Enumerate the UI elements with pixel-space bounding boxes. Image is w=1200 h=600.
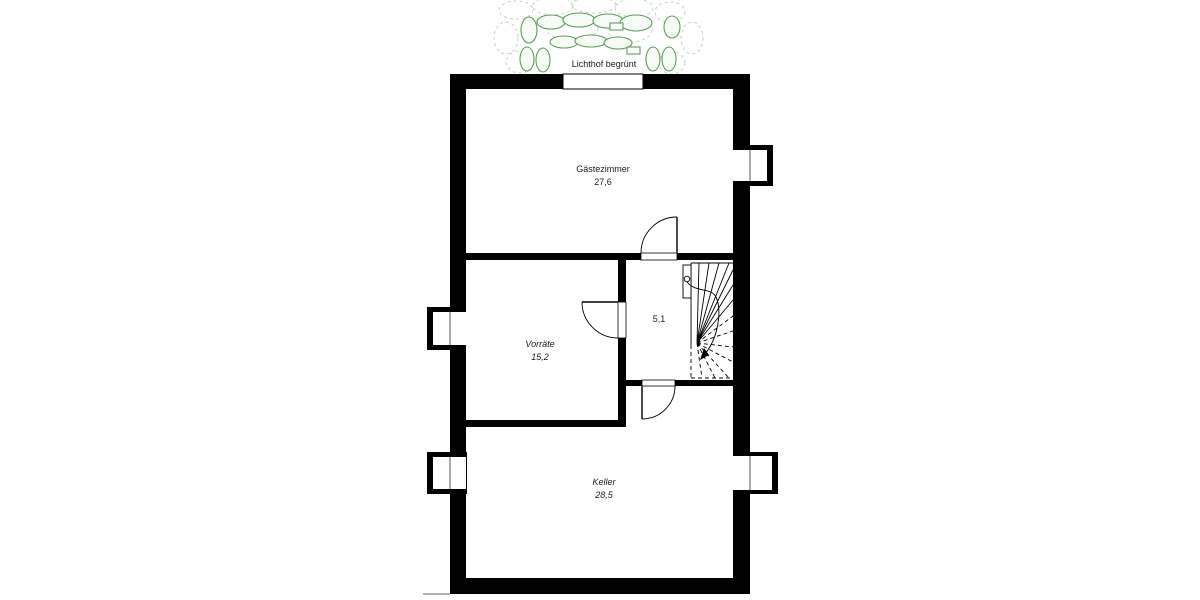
exterior-wall-bottom bbox=[450, 578, 750, 594]
interior-wall-storage-east bbox=[618, 260, 626, 427]
bush-ellipse bbox=[662, 47, 676, 71]
bush-ellipse bbox=[520, 47, 534, 71]
stair-treads-upper bbox=[697, 263, 733, 343]
room-label-cellar: Keller bbox=[592, 477, 616, 487]
stair-treads-lower bbox=[697, 316, 733, 378]
interior-wall-hall-south-right bbox=[675, 380, 733, 386]
room-area-storage: 15,2 bbox=[531, 352, 549, 362]
bush-ellipse bbox=[536, 48, 550, 72]
room-label-storage: Vorräte bbox=[525, 339, 554, 349]
stair-outline-dashed bbox=[691, 345, 733, 378]
bush-ellipse bbox=[575, 35, 607, 47]
storage-door-swing-arc bbox=[582, 302, 618, 338]
room-area-stairhall: 5,1 bbox=[653, 314, 666, 324]
bush-ellipse bbox=[646, 47, 660, 71]
room-label-guestroom: Gästezimmer bbox=[576, 164, 630, 174]
threshold-cellar-door bbox=[642, 380, 675, 386]
threshold-guestroom-door bbox=[641, 253, 677, 260]
interior-wall-hall-south-left bbox=[626, 380, 642, 386]
door-thresholds bbox=[618, 253, 677, 386]
guestroom-door-swing-arc bbox=[641, 217, 677, 253]
window-cellar-right-pane bbox=[733, 456, 772, 490]
planter-box bbox=[610, 23, 623, 30]
labels: Lichthof begrünt Gästezimmer 27,6 Vorrät… bbox=[525, 59, 665, 500]
bush-ellipse bbox=[563, 13, 595, 27]
cellar-door-swing-arc bbox=[642, 386, 675, 419]
interior-wall-guestroom-south-right bbox=[677, 253, 733, 260]
bush-ellipse bbox=[537, 15, 565, 29]
planter-box bbox=[627, 47, 640, 54]
bush-ellipse bbox=[664, 16, 680, 38]
windows bbox=[427, 74, 778, 494]
bush-ellipse bbox=[620, 15, 652, 31]
interior-wall-storage-south bbox=[466, 420, 626, 427]
stair-newel-post bbox=[684, 276, 690, 282]
threshold-storage-door bbox=[618, 302, 626, 338]
room-area-guestroom: 27,6 bbox=[594, 177, 612, 187]
floorplan-page: Lichthof begrünt Gästezimmer 27,6 Vorrät… bbox=[0, 0, 1200, 600]
interior-wall-guestroom-south-left bbox=[466, 253, 641, 260]
bush-ellipse bbox=[521, 17, 537, 43]
floorplan-svg: Lichthof begrünt Gästezimmer 27,6 Vorrät… bbox=[0, 0, 1200, 600]
lichthof-caption: Lichthof begrünt bbox=[572, 59, 637, 69]
bush-ellipse bbox=[550, 36, 578, 48]
staircase bbox=[683, 263, 733, 378]
window-lichthof-opening bbox=[563, 74, 643, 89]
room-area-cellar: 28,5 bbox=[594, 490, 614, 500]
stair-walking-line bbox=[687, 282, 719, 355]
